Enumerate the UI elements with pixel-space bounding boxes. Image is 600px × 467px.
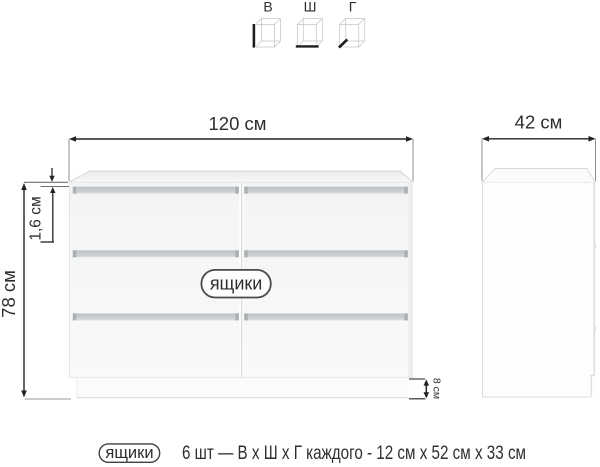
svg-text:1,6 см: 1,6 см (27, 196, 44, 240)
svg-text:8 см: 8 см (431, 378, 443, 399)
svg-text:В: В (263, 0, 272, 15)
svg-text:ящики: ящики (210, 274, 263, 294)
svg-text:Ш: Ш (304, 0, 317, 15)
svg-text:ящики: ящики (105, 444, 153, 462)
svg-text:6 шт — В х Ш х Г каждого - 12: 6 шт — В х Ш х Г каждого - 12 см х 52 см… (182, 442, 526, 464)
svg-text:Г: Г (349, 0, 357, 15)
svg-text:78 см: 78 см (0, 270, 19, 318)
svg-text:42 см: 42 см (515, 112, 563, 133)
svg-text:120 см: 120 см (209, 113, 267, 134)
